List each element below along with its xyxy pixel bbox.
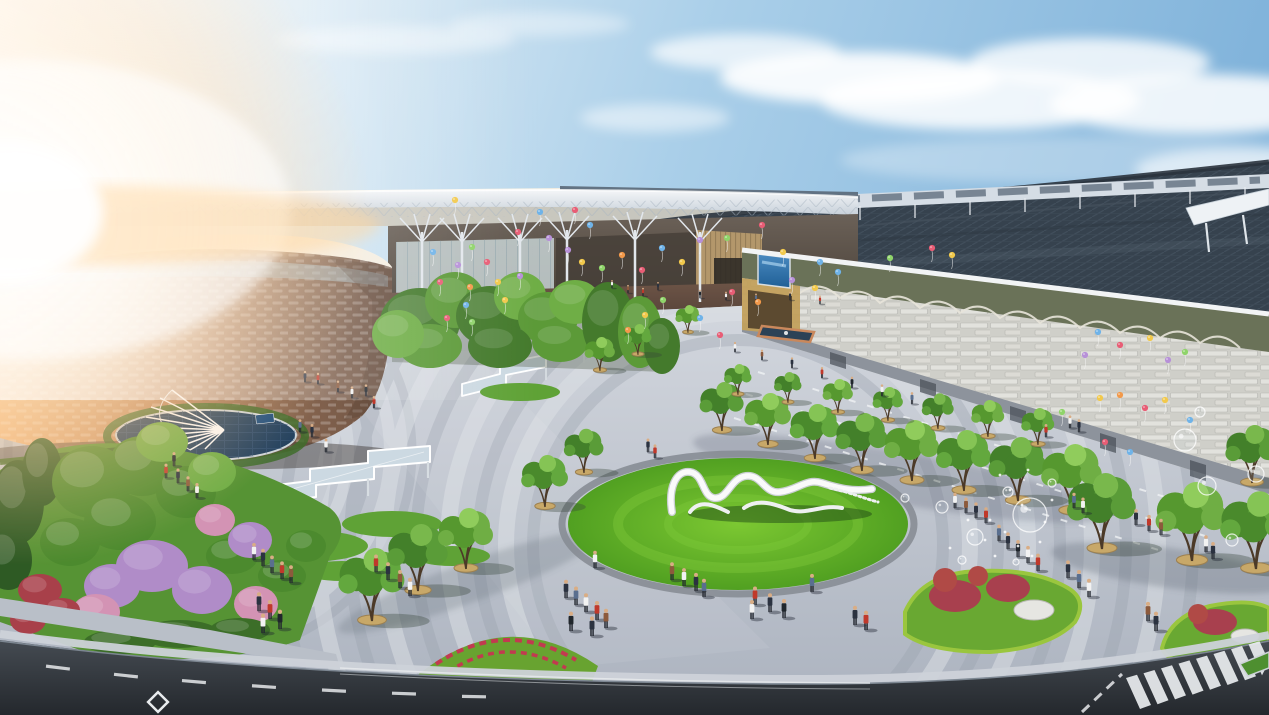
- soap-bubble: [1003, 487, 1013, 497]
- garden-shrub: [228, 522, 272, 558]
- soap-bubble: [1195, 407, 1205, 417]
- fountain-jet: [784, 331, 788, 335]
- bubble-sparkle: [1021, 504, 1024, 507]
- soap-bubble: [936, 501, 948, 513]
- grove-tree: [644, 318, 680, 374]
- bubble-sparkle: [1027, 469, 1030, 472]
- soap-bubble: [901, 494, 909, 502]
- garden-shrub: [188, 452, 236, 492]
- soap-bubble: [1048, 479, 1056, 487]
- bubble-sparkle: [999, 474, 1002, 477]
- bubble-sparkle: [1004, 531, 1007, 534]
- garden-shrub: [136, 422, 188, 462]
- rendering-canvas: Architectural rendering: exhibition cent…: [0, 0, 1269, 715]
- cloud: [450, 12, 630, 36]
- garden-shrub: [286, 530, 326, 562]
- bubble-sparkle: [989, 519, 992, 522]
- garden-shrub: [195, 504, 235, 536]
- bubble-sparkle: [1044, 521, 1047, 524]
- plaza-rendering: Architectural rendering: exhibition cent…: [0, 0, 1269, 715]
- bubble-sparkle: [949, 547, 952, 550]
- white-rock: [1014, 600, 1054, 620]
- garden-shrub: [172, 566, 232, 614]
- bubble-sparkle: [1031, 555, 1034, 558]
- cloud: [650, 34, 840, 70]
- soap-bubble: [1013, 498, 1047, 532]
- led-screen: [758, 254, 790, 288]
- soap-bubble: [1013, 559, 1019, 565]
- cloud: [580, 104, 730, 132]
- bubble-sparkle: [1039, 541, 1042, 544]
- bubble-sparkle: [1051, 499, 1054, 502]
- soap-bubble: [958, 556, 966, 564]
- bubble-sparkle: [1017, 545, 1020, 548]
- bubble-sparkle: [1009, 489, 1012, 492]
- red-leaf-tree: [968, 566, 988, 586]
- red-leaf-tree: [933, 568, 957, 592]
- pool-sign: [256, 413, 275, 424]
- soap-bubble: [967, 529, 983, 545]
- red-leaf-tree: [1188, 604, 1208, 624]
- bubble-sparkle: [984, 539, 987, 542]
- soap-bubble: [1174, 429, 1196, 451]
- bubble-sparkle: [967, 519, 970, 522]
- grove-tree: [372, 310, 424, 358]
- soap-bubble: [1226, 534, 1238, 546]
- soap-bubble: [1248, 466, 1264, 482]
- grove-tree: [468, 324, 532, 368]
- soap-bubble: [1198, 477, 1216, 495]
- grove-tree: [532, 322, 588, 362]
- garden-shrub: [40, 518, 100, 566]
- bubble-sparkle: [994, 555, 997, 558]
- red-shrub: [986, 574, 1030, 602]
